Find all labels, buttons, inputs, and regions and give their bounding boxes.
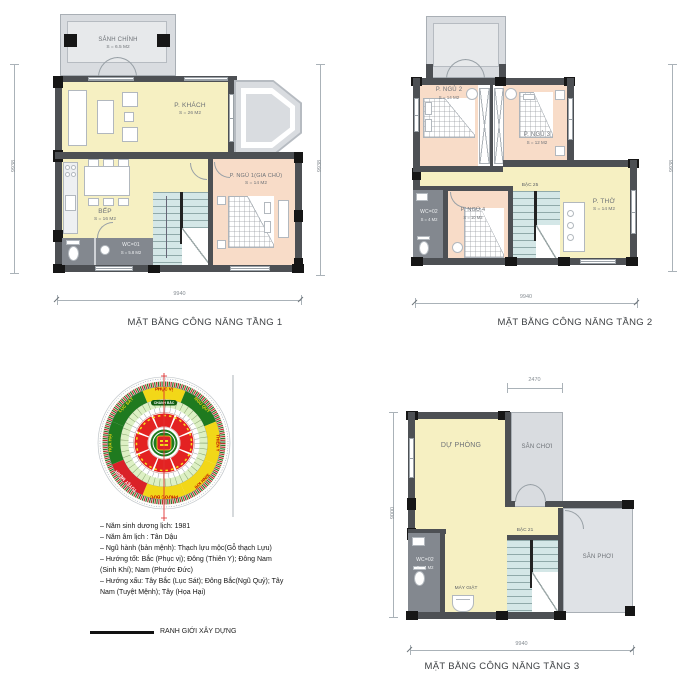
altar-bowl — [567, 210, 574, 217]
column — [625, 606, 635, 616]
room-name: WC=02 — [411, 208, 447, 216]
washbasin — [100, 245, 110, 255]
room-label-wc02: WC=02 S = 4 M2 — [411, 208, 447, 223]
stove-burner — [65, 165, 70, 170]
nightstand — [217, 240, 226, 249]
washbasin — [416, 193, 428, 201]
room-name: P. KHÁCH — [150, 102, 230, 110]
wc-partition — [94, 238, 96, 265]
wall — [55, 76, 62, 272]
wall — [208, 159, 213, 265]
column — [407, 498, 416, 510]
room-area: S = 14 M2 — [580, 206, 628, 213]
washing-machine-label: MÁY GIẶT — [444, 586, 488, 591]
window — [568, 98, 573, 140]
stove-burner — [71, 165, 76, 170]
wall — [413, 166, 503, 172]
armchair — [122, 92, 138, 107]
room-area: S = 10 M2 — [446, 214, 500, 221]
fengshui-notes: – Năm sinh dương lịch: 1981 – Năm âm lịc… — [100, 521, 285, 598]
wardrobe — [278, 200, 289, 238]
dimension-line — [410, 650, 633, 651]
room-area: S = 12 M2 — [508, 139, 566, 146]
column — [495, 77, 506, 86]
washbasin — [412, 537, 425, 546]
sofa — [68, 90, 87, 146]
room-name: SÂN PHƠI — [565, 553, 631, 561]
window — [88, 77, 134, 81]
column — [53, 76, 63, 88]
room-name: BẾP — [75, 208, 135, 216]
bed-fold — [533, 92, 553, 136]
wall — [413, 78, 574, 85]
wardrobe — [494, 88, 504, 164]
room-label-san-choi: SÂN CHƠI — [511, 443, 563, 451]
dimension-line — [415, 303, 637, 304]
dimension-tick — [10, 64, 19, 65]
wall — [558, 508, 563, 613]
room-name: P. THỜ — [580, 198, 628, 206]
room-label-p-ngu4: P. NGỦ 4 S = 10 M2 — [446, 206, 500, 221]
room-name: SẢNH CHÍNH — [60, 36, 176, 44]
floor2-title: MẶT BẰNG CÔNG NĂNG TẦNG 2 — [445, 317, 680, 328]
dimension-tick — [507, 383, 508, 393]
toilet — [68, 246, 79, 261]
column — [294, 152, 303, 163]
nightstand — [555, 146, 565, 156]
nightstand — [555, 90, 565, 100]
dimension-value: 9940 — [57, 291, 302, 297]
room-area: S = 6.5 M2 — [60, 44, 176, 51]
wall — [499, 64, 506, 78]
column — [411, 257, 423, 266]
stove-burner — [71, 172, 76, 177]
floor1-title: MẶT BẰNG CÔNG NĂNG TẦNG 1 — [75, 317, 335, 328]
wall — [490, 85, 493, 166]
room-area: S = 4 M2 — [406, 564, 444, 571]
note-line: – Ngũ hành (bản mệnh): Thạch lựu mộc(Gỗ … — [100, 543, 285, 554]
room-area: S = 4 M2 — [411, 216, 447, 223]
dimension-tick — [389, 412, 398, 413]
column — [496, 611, 508, 620]
room-name: DỰ PHÒNG — [425, 442, 497, 450]
column — [554, 611, 566, 620]
window — [409, 438, 414, 478]
pillow — [264, 221, 271, 233]
wall — [448, 186, 510, 191]
chair — [103, 198, 114, 206]
room-label-wc01: WC=01 S = 5.8 M2 — [110, 241, 152, 256]
dimension-value: 2470 — [507, 377, 562, 383]
column — [558, 257, 570, 266]
stair-cut — [182, 228, 210, 265]
room-area: S = 14 M2 — [216, 180, 296, 187]
room-label-p-tho: P. THỜ S = 14 M2 — [580, 198, 628, 213]
window — [580, 259, 616, 264]
dimension-value: 9000 — [390, 499, 396, 527]
dimension-tick — [316, 275, 325, 276]
wall — [426, 64, 433, 78]
floorplan-sheet: SẢNH CHÍNH S = 6.5 M2 — [0, 0, 680, 685]
room-name: WC=02 — [406, 556, 444, 564]
dimension-tick — [562, 383, 563, 393]
side-table — [505, 88, 517, 100]
bed-fold — [444, 98, 475, 136]
dimension-value: 9938 — [317, 152, 323, 180]
wall — [440, 529, 445, 613]
pillow — [264, 202, 271, 214]
dining-table — [84, 166, 130, 196]
dimension-value: 9938 — [669, 152, 675, 180]
note-line: – Năm sinh dương lịch: 1981 — [100, 521, 285, 532]
stair-cut — [532, 572, 558, 612]
pillow — [425, 102, 432, 115]
wall — [505, 501, 515, 507]
washing-machine — [452, 595, 474, 612]
wall — [545, 501, 563, 507]
washing-machine-detail — [456, 599, 470, 600]
dimension-value: 9940 — [415, 294, 637, 300]
armchair — [122, 127, 138, 142]
room-label-du-phong: DỰ PHÒNG — [425, 442, 497, 450]
dimension-line — [57, 300, 302, 301]
column — [148, 264, 160, 273]
column — [292, 264, 304, 273]
room-area: S = 26 M2 — [150, 110, 230, 117]
stove-burner — [65, 172, 70, 177]
fengshui-compass: CHÁNH BẮC PHỤC VỊ NGŨ QUỶ THIÊN Y SINH K… — [94, 371, 234, 523]
toilet-tank — [66, 240, 80, 245]
column — [294, 210, 303, 222]
pillow — [523, 94, 535, 100]
room-label-p-ngu3: P. NGỦ 3 S = 12 M2 — [508, 131, 566, 146]
side-table — [466, 88, 478, 100]
compass-dir-e: THIÊN Y — [216, 434, 221, 451]
altar-bowl — [567, 222, 574, 229]
stair-arrow — [166, 196, 167, 258]
note-line: – Hướng xấu: Tây Bắc (Lục Sát); Đông Bắc… — [100, 576, 285, 598]
coffee-table — [97, 100, 114, 134]
window — [95, 266, 133, 271]
dimension-value: 9940 — [410, 641, 633, 647]
pillow — [425, 119, 432, 132]
room-label-sanh-chinh: SẢNH CHÍNH S = 6.5 M2 — [60, 36, 176, 51]
toilet — [419, 241, 429, 255]
dimension-tick — [10, 273, 19, 274]
legend-label: RANH GIỚI XÂY DỰNG — [160, 628, 236, 635]
room-area: S = 16 M2 — [75, 216, 135, 223]
note-line: – Hướng tốt: Bắc (Phục vị); Đông (Thiên … — [100, 554, 285, 576]
floor3-title: MẶT BẰNG CÔNG NĂNG TẦNG 3 — [372, 661, 632, 672]
room-label-p-khach: P. KHÁCH S = 26 M2 — [150, 102, 230, 117]
wall — [55, 152, 302, 159]
window — [414, 98, 419, 132]
room-name: WC=01 — [110, 241, 152, 249]
window — [230, 266, 270, 271]
column — [626, 257, 638, 266]
room-label-wc03: WC=02 S = 4 M2 — [406, 556, 444, 571]
wc-floor — [413, 190, 445, 265]
dimension-tick — [389, 617, 398, 618]
column — [406, 611, 418, 620]
wardrobe — [479, 88, 490, 164]
side-table — [452, 242, 463, 253]
note-line: – Năm âm lịch : Tân Dậu — [100, 532, 285, 543]
dimension-tick — [668, 64, 677, 65]
dimension-value: 9938 — [11, 152, 17, 180]
room-label-san-phoi: SÂN PHƠI — [565, 553, 631, 561]
side-table — [124, 112, 134, 122]
wall — [503, 160, 637, 167]
room-name: SÂN CHƠI — [511, 443, 563, 451]
window — [631, 190, 636, 234]
altar-bowl — [567, 234, 574, 241]
legend-line — [90, 631, 154, 634]
stair-label: BẬC 25 — [505, 183, 555, 188]
column — [53, 264, 65, 273]
compass-dir-w: HỌA HẠI — [108, 434, 113, 452]
column — [505, 257, 517, 266]
column — [622, 500, 634, 509]
dimension-line — [507, 388, 562, 389]
wall — [408, 412, 510, 419]
stair-label: BẬC 21 — [500, 528, 550, 533]
window — [184, 77, 228, 81]
chair — [88, 198, 99, 206]
chair — [118, 198, 129, 206]
wall — [443, 186, 448, 265]
dimension-tick — [668, 271, 677, 272]
room-area: S = 5.8 M2 — [110, 249, 152, 256]
wall — [408, 612, 565, 619]
room-name: P. NGỦ 3 — [508, 131, 566, 139]
room-name: P. NGỦ 4 — [446, 206, 500, 214]
dimension-tick — [316, 64, 325, 65]
nightstand — [217, 196, 226, 205]
toilet-tank — [417, 236, 430, 240]
room-label-bep: BẾP S = 16 M2 — [75, 208, 135, 223]
wall — [505, 412, 511, 507]
toilet — [414, 571, 425, 586]
